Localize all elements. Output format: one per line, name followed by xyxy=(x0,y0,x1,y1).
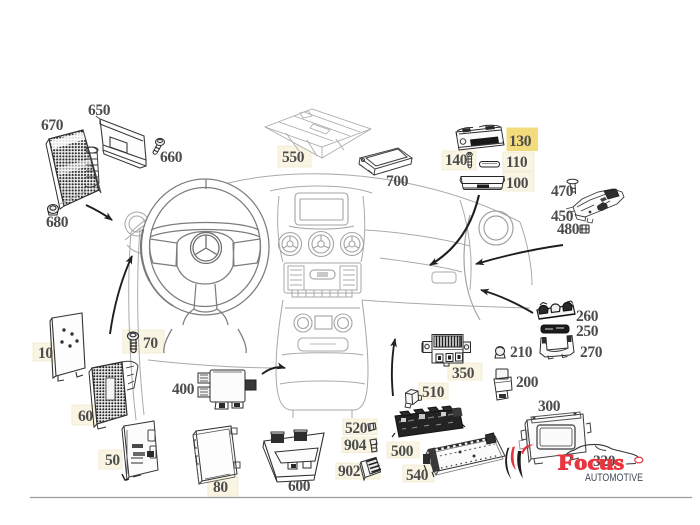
svg-text:680: 680 xyxy=(46,214,69,231)
svg-text:350: 350 xyxy=(452,365,475,382)
svg-text:AUTOMOTIVE: AUTOMOTIVE xyxy=(585,472,643,484)
svg-text:140: 140 xyxy=(445,152,468,169)
svg-text:110: 110 xyxy=(506,154,528,171)
svg-text:540: 540 xyxy=(406,467,429,484)
svg-text:100: 100 xyxy=(506,175,529,192)
svg-text:10: 10 xyxy=(38,345,53,362)
svg-text:550: 550 xyxy=(282,149,305,166)
svg-text:250: 250 xyxy=(576,323,599,340)
svg-text:200: 200 xyxy=(516,374,539,391)
svg-text:480: 480 xyxy=(557,221,580,238)
svg-text:130: 130 xyxy=(509,133,532,150)
svg-text:300: 300 xyxy=(538,398,561,415)
svg-text:670: 670 xyxy=(41,117,64,134)
svg-text:80: 80 xyxy=(213,479,228,496)
svg-text:60: 60 xyxy=(78,408,93,425)
svg-text:210: 210 xyxy=(510,344,533,361)
svg-text:70: 70 xyxy=(143,335,158,352)
svg-text:50: 50 xyxy=(105,452,120,469)
svg-text:Focus: Focus xyxy=(558,450,625,475)
svg-text:650: 650 xyxy=(88,102,111,119)
svg-text:520: 520 xyxy=(345,420,368,437)
svg-text:700: 700 xyxy=(386,173,409,190)
svg-text:270: 270 xyxy=(580,344,603,361)
svg-text:600: 600 xyxy=(288,478,311,495)
svg-text:500: 500 xyxy=(391,443,414,460)
svg-text:510: 510 xyxy=(422,384,445,401)
svg-text:400: 400 xyxy=(172,381,195,398)
svg-text:904: 904 xyxy=(344,437,367,454)
svg-text:470: 470 xyxy=(551,183,574,200)
svg-text:902: 902 xyxy=(338,463,361,480)
svg-text:660: 660 xyxy=(160,149,183,166)
